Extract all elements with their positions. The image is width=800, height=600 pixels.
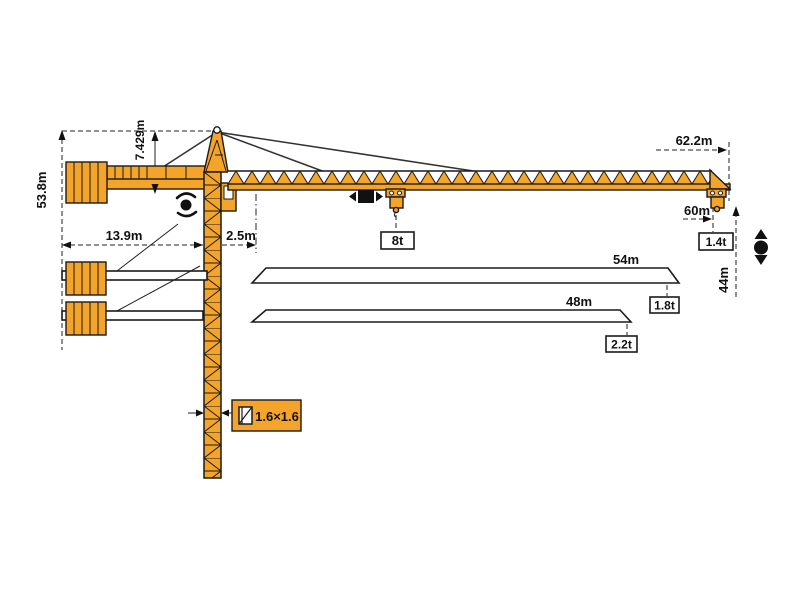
counterweight-block — [66, 162, 107, 203]
counter-jib — [66, 162, 207, 203]
dim-tower-head-height: 7.429m — [133, 120, 147, 161]
jib-tip — [710, 170, 730, 189]
jib-variant-54 — [252, 268, 679, 283]
tip-load-54-label: 1.8t — [654, 299, 675, 313]
jib-variant-54-label: 54m — [613, 252, 639, 267]
arrow-left — [221, 410, 229, 417]
dim-max-jib-length: 62.2m — [676, 133, 713, 148]
slewing-icon — [177, 193, 196, 216]
arrow-up — [733, 206, 740, 216]
crane-diagram-svg: 53.8m 7.429m 13.9m 2.5m 62.2m 60m 44m 54… — [0, 0, 800, 600]
trolley-main — [386, 189, 405, 218]
dim-jib-root-offset: 2.5m — [226, 228, 256, 243]
arrow-right — [196, 410, 204, 417]
hoisting-icon — [754, 229, 768, 265]
jib-variant-48-label: 48m — [566, 294, 592, 309]
dim-under-hook-height: 44m — [716, 267, 731, 293]
arrow-right — [194, 242, 203, 249]
mast — [204, 172, 221, 478]
max-capacity-label: 8t — [392, 233, 404, 248]
jib — [228, 170, 730, 190]
tip-load-48-label: 2.2t — [611, 338, 632, 352]
counterweight-block — [66, 262, 106, 295]
arrow-right — [718, 147, 727, 154]
tip-load-60-label: 1.4t — [706, 235, 727, 249]
hook — [714, 206, 719, 211]
jib-variant-48 — [252, 310, 631, 322]
jib-pendant-1 — [217, 132, 325, 172]
jib-bottom-chord — [228, 184, 730, 190]
hook — [393, 207, 398, 212]
hook-block — [390, 197, 403, 208]
crane-diagram: 53.8m 7.429m 13.9m 2.5m 62.2m 60m 44m 54… — [0, 0, 800, 600]
dim-working-radius-60: 60m — [684, 203, 710, 218]
arrow-left — [62, 242, 71, 249]
trolley-travel-icon — [349, 190, 383, 203]
apex-pin — [214, 127, 220, 133]
counterweight-block — [66, 302, 106, 335]
counter-jib-slab — [107, 166, 205, 180]
dim-total-height: 53.8m — [34, 172, 49, 209]
jib-pendant-2 — [217, 132, 480, 172]
jib-lattice — [228, 171, 712, 184]
mast-cross-section-label: 1.6×1.6 — [255, 409, 299, 424]
dim-counter-jib-length: 13.9m — [106, 228, 143, 243]
arrow-up — [152, 131, 159, 141]
